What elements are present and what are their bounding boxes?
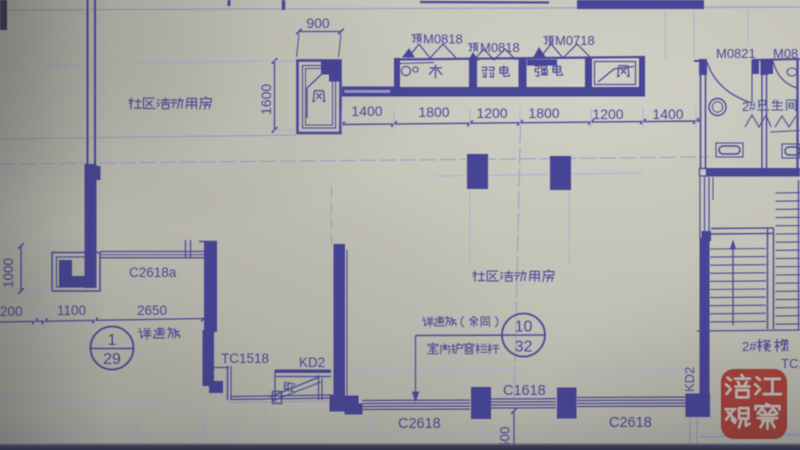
svg-text:1400: 1400 bbox=[652, 106, 683, 122]
svg-text:1200: 1200 bbox=[592, 106, 623, 122]
svg-text:2#: 2# bbox=[742, 100, 756, 114]
svg-text:M0718: M0718 bbox=[555, 33, 595, 48]
svg-text:M0821: M0821 bbox=[716, 46, 756, 61]
svg-text:M0818: M0818 bbox=[480, 40, 520, 55]
svg-text:M0818: M0818 bbox=[423, 32, 463, 47]
svg-text:1200: 1200 bbox=[476, 105, 507, 121]
svg-text:1800: 1800 bbox=[528, 105, 559, 121]
